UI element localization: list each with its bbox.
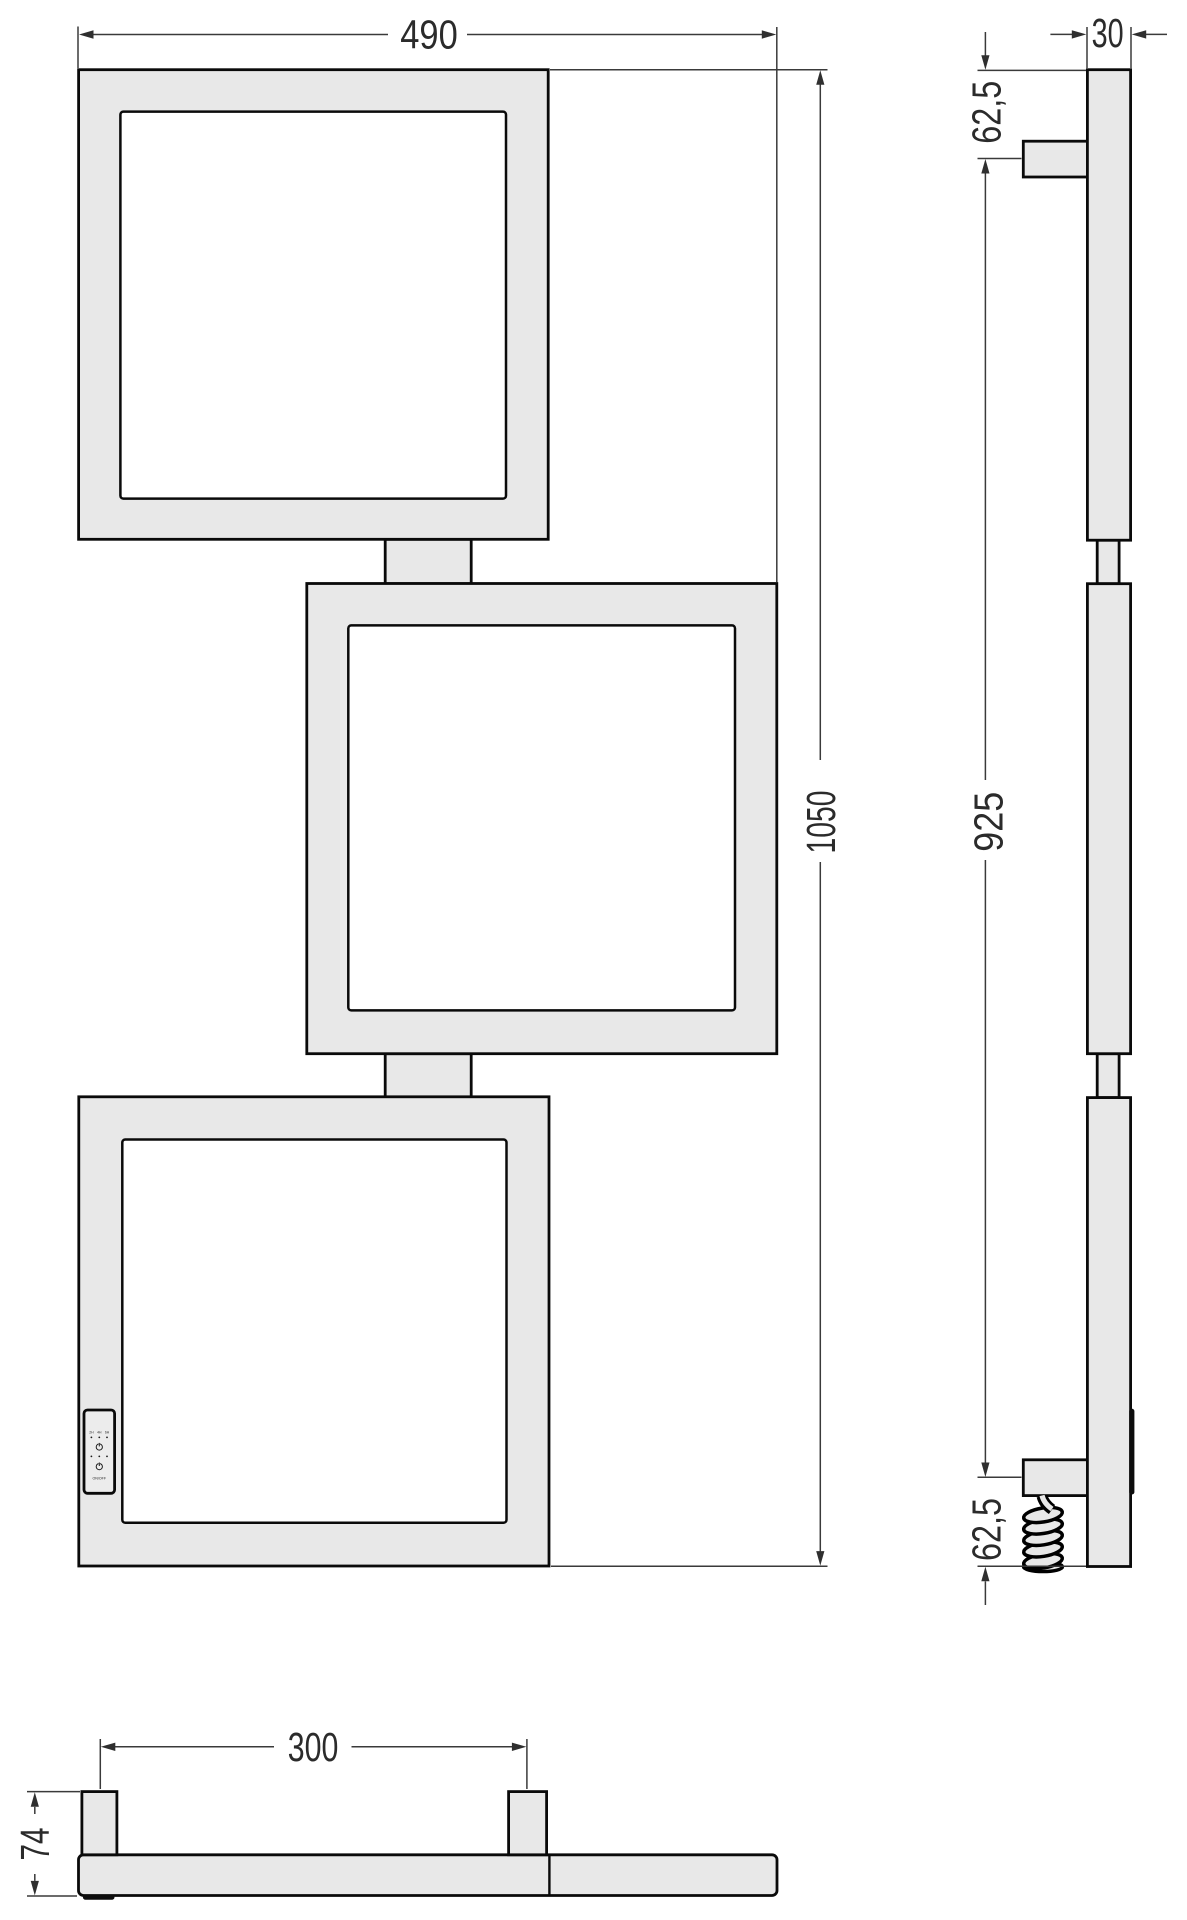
svg-text:62,5: 62,5 [964, 1498, 1010, 1561]
svg-text:30: 30 [1092, 10, 1124, 56]
svg-text:1050: 1050 [798, 791, 844, 854]
svg-text:74: 74 [12, 1828, 58, 1861]
svg-text:925: 925 [966, 792, 1012, 852]
svg-text:490: 490 [400, 12, 458, 58]
svg-text:ON/OFF: ON/OFF [93, 1476, 107, 1480]
svg-text:2H: 2H [89, 1431, 94, 1435]
svg-text:300: 300 [288, 1724, 339, 1770]
svg-text:4H: 4H [97, 1431, 102, 1435]
svg-text:6H: 6H [105, 1431, 110, 1435]
svg-text:62,5: 62,5 [964, 81, 1010, 144]
